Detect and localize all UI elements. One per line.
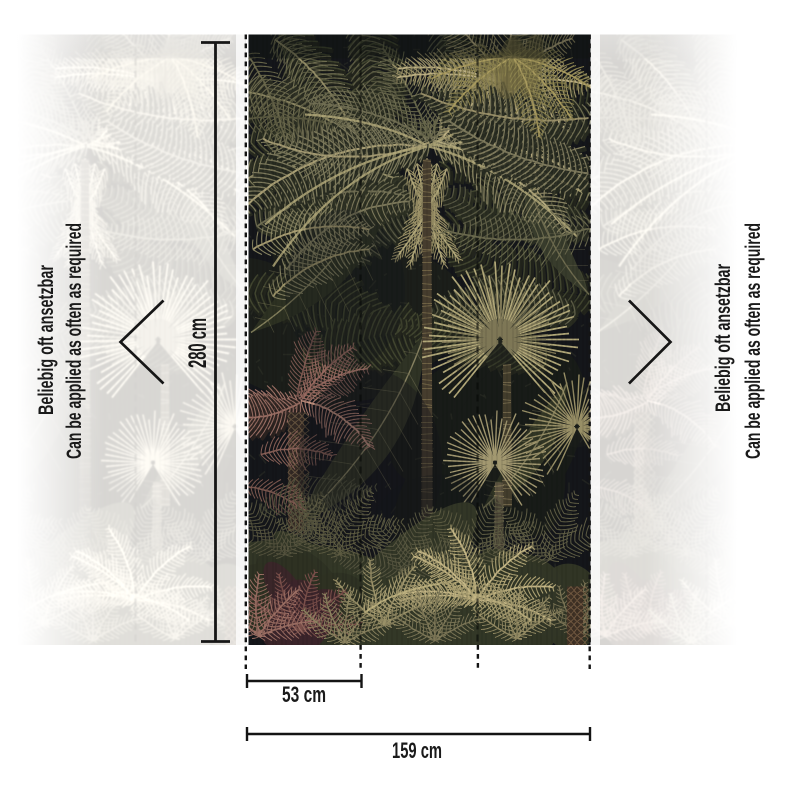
svg-text:Can be applied as often as req: Can be applied as often as required (63, 223, 86, 459)
svg-text:Beliebig oft ansetzbar: Beliebig oft ansetzbar (712, 264, 735, 412)
svg-text:280 cm: 280 cm (184, 318, 212, 368)
svg-text:159 cm: 159 cm (392, 738, 442, 763)
svg-text:Beliebig oft ansetzbar: Beliebig oft ansetzbar (35, 265, 58, 415)
svg-text:Can be applied as often as req: Can be applied as often as required (742, 223, 765, 459)
svg-text:53 cm: 53 cm (282, 682, 326, 707)
